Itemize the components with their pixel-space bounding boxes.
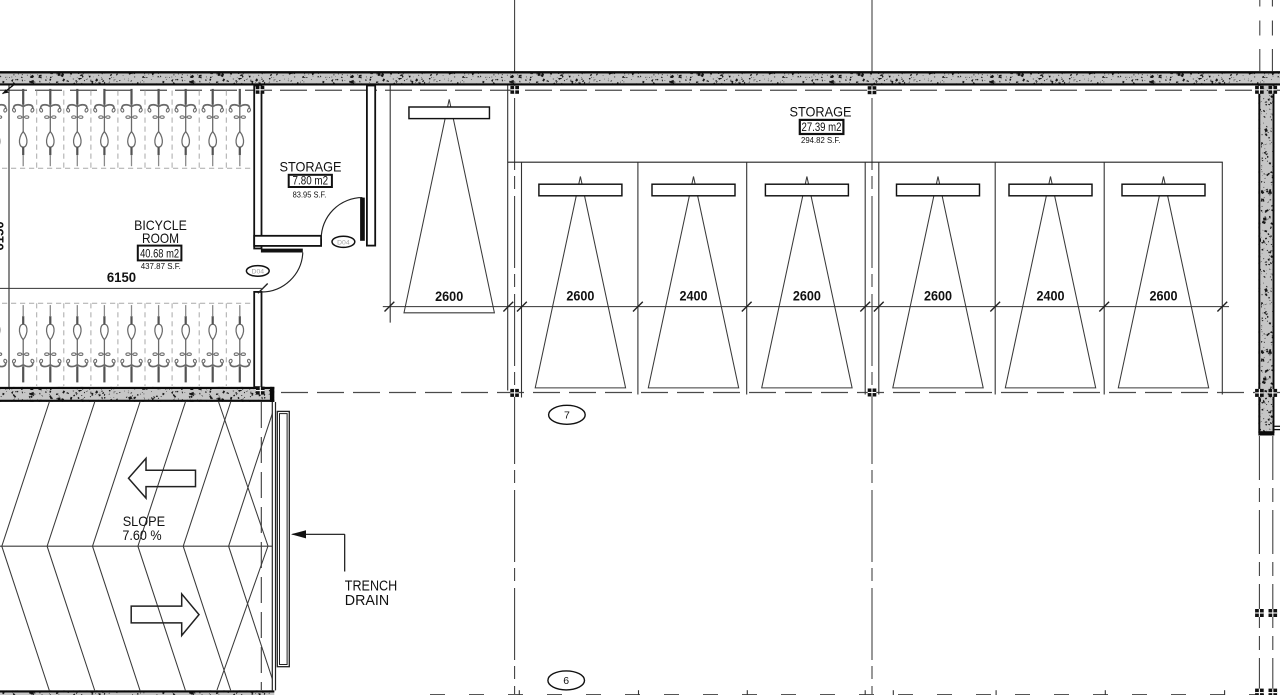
svg-text:40.68 m2: 40.68 m2 <box>140 248 179 260</box>
svg-text:ROOM: ROOM <box>142 230 179 246</box>
svg-text:6150: 6150 <box>107 270 137 285</box>
svg-text:DRAIN: DRAIN <box>345 592 389 609</box>
svg-text:2600: 2600 <box>793 289 821 304</box>
svg-text:27.39 m2: 27.39 m2 <box>802 122 842 134</box>
svg-text:83.95 S.F.: 83.95 S.F. <box>293 189 327 199</box>
svg-text:294.82 S.F.: 294.82 S.F. <box>801 135 840 145</box>
svg-text:D04: D04 <box>337 239 350 246</box>
svg-text:7.60 %: 7.60 % <box>122 527 161 543</box>
svg-text:STORAGE: STORAGE <box>280 159 342 174</box>
svg-text:6: 6 <box>563 675 569 687</box>
svg-text:7.80 m2: 7.80 m2 <box>293 176 329 188</box>
svg-text:7: 7 <box>564 410 570 422</box>
svg-text:2600: 2600 <box>924 289 952 304</box>
svg-text:2600: 2600 <box>435 289 463 304</box>
svg-text:437.87 S.F.: 437.87 S.F. <box>141 261 181 271</box>
svg-text:STORAGE: STORAGE <box>790 104 852 119</box>
svg-text:2400: 2400 <box>679 289 707 304</box>
svg-text:2600: 2600 <box>1149 289 1177 304</box>
svg-text:2400: 2400 <box>1036 289 1064 304</box>
svg-text:2600: 2600 <box>566 289 594 304</box>
svg-text:6150: 6150 <box>0 221 6 251</box>
svg-text:D04: D04 <box>252 268 265 275</box>
